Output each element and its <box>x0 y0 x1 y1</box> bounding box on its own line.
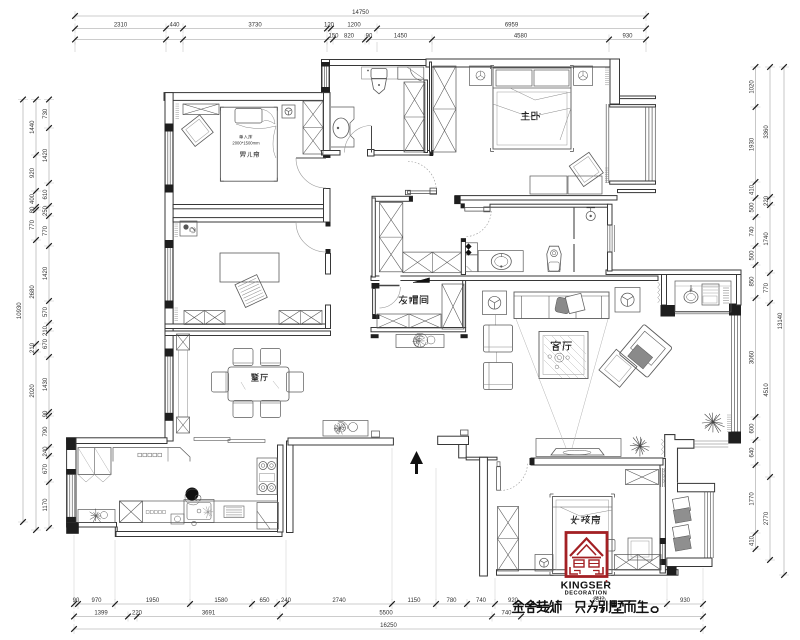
svg-text:1430: 1430 <box>43 377 49 391</box>
svg-text:740: 740 <box>501 611 512 617</box>
svg-text:930: 930 <box>680 598 691 604</box>
svg-text:440: 440 <box>169 23 180 29</box>
svg-text:600: 600 <box>750 423 756 434</box>
svg-text:780: 780 <box>446 598 457 604</box>
svg-text:13140: 13140 <box>778 312 784 329</box>
svg-text:1450: 1450 <box>394 34 408 40</box>
svg-text:150: 150 <box>328 34 339 40</box>
svg-text:2770: 2770 <box>764 511 770 525</box>
svg-text:770: 770 <box>764 282 770 293</box>
svg-text:1200: 1200 <box>347 23 361 29</box>
svg-text:220: 220 <box>132 611 143 617</box>
svg-text:400: 400 <box>30 193 36 204</box>
svg-text:1150: 1150 <box>408 598 422 604</box>
svg-text:670: 670 <box>43 463 49 474</box>
svg-text:850: 850 <box>750 276 756 287</box>
svg-text:740: 740 <box>476 598 487 604</box>
svg-text:770: 770 <box>43 225 49 236</box>
svg-text:650: 650 <box>259 598 270 604</box>
svg-text:1950: 1950 <box>146 598 160 604</box>
svg-text:1440: 1440 <box>30 120 36 134</box>
svg-text:210: 210 <box>30 342 36 353</box>
svg-text:2020: 2020 <box>30 384 36 398</box>
svg-text:2000*1500mm: 2000*1500mm <box>232 141 260 146</box>
svg-text:14750: 14750 <box>352 10 369 16</box>
svg-text:570: 570 <box>43 306 49 317</box>
svg-text:5500: 5500 <box>379 611 393 617</box>
svg-text:410: 410 <box>750 535 756 546</box>
svg-text:930: 930 <box>622 34 633 40</box>
svg-text:220: 220 <box>764 195 770 206</box>
svg-text:740: 740 <box>750 226 756 237</box>
svg-text:790: 790 <box>43 426 49 437</box>
svg-text:1770: 1770 <box>750 492 756 506</box>
svg-text:920: 920 <box>30 167 36 178</box>
svg-text:2740: 2740 <box>332 598 346 604</box>
svg-text:2680: 2680 <box>30 285 36 299</box>
svg-text:3730: 3730 <box>248 23 262 29</box>
svg-text:4580: 4580 <box>514 34 528 40</box>
svg-text:1930: 1930 <box>750 137 756 151</box>
svg-text:1420: 1420 <box>43 148 49 162</box>
svg-text:240: 240 <box>43 446 49 457</box>
svg-text:6959: 6959 <box>505 23 519 29</box>
svg-text:640: 640 <box>750 447 756 458</box>
svg-text:240: 240 <box>281 598 292 604</box>
svg-text:2310: 2310 <box>114 23 128 29</box>
svg-text:3510: 3510 <box>594 595 605 600</box>
svg-text:1170: 1170 <box>43 498 49 512</box>
svg-text:1580: 1580 <box>214 598 228 604</box>
svg-text:500: 500 <box>750 250 756 261</box>
svg-text:1020: 1020 <box>750 80 756 94</box>
svg-text:1740: 1740 <box>764 232 770 246</box>
svg-text:770: 770 <box>30 219 36 230</box>
svg-text:90: 90 <box>43 410 49 417</box>
svg-text:970: 970 <box>91 598 102 604</box>
svg-text:10930: 10930 <box>17 302 23 319</box>
svg-text:3060: 3060 <box>750 350 756 364</box>
svg-text:410: 410 <box>750 184 756 195</box>
svg-text:210: 210 <box>43 325 49 336</box>
svg-text:1420: 1420 <box>43 266 49 280</box>
svg-text:90: 90 <box>73 598 80 604</box>
svg-text:90: 90 <box>366 34 373 40</box>
svg-text:610: 610 <box>43 189 49 200</box>
svg-text:3691: 3691 <box>202 611 216 617</box>
svg-text:1399: 1399 <box>94 611 108 617</box>
svg-text:500: 500 <box>750 202 756 213</box>
svg-text:4510: 4510 <box>764 383 770 397</box>
svg-text:730: 730 <box>43 108 49 119</box>
svg-text:80: 80 <box>30 206 36 213</box>
svg-text:820: 820 <box>344 34 355 40</box>
svg-text:3360: 3360 <box>764 125 770 139</box>
svg-text:670: 670 <box>43 338 49 349</box>
svg-text:250: 250 <box>43 205 49 216</box>
svg-text:120: 120 <box>324 23 335 29</box>
svg-text:16250: 16250 <box>380 623 397 629</box>
